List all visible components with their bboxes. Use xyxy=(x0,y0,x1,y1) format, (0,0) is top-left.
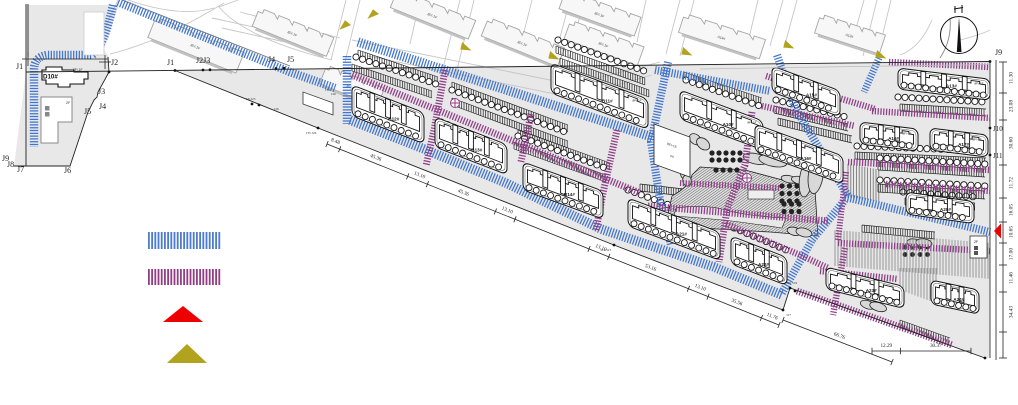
svg-text:8F/-1F: 8F/-1F xyxy=(747,120,756,124)
svg-text:B11#: B11# xyxy=(602,99,613,104)
svg-text:17.00: 17.00 xyxy=(1009,248,1015,260)
svg-text:23.08: 23.08 xyxy=(1009,100,1015,112)
svg-text:A17#: A17# xyxy=(958,142,969,147)
svg-text:J1: J1 xyxy=(167,58,174,67)
svg-text:J6: J6 xyxy=(64,166,71,175)
svg-text:J1: J1 xyxy=(16,62,23,71)
svg-text:317: 317 xyxy=(786,313,791,317)
svg-text:A22#: A22# xyxy=(758,262,769,267)
svg-text:J9: J9 xyxy=(995,48,1002,57)
svg-text:J3: J3 xyxy=(98,87,105,96)
svg-text:34.43: 34.43 xyxy=(1009,306,1015,318)
svg-text:11.72: 11.72 xyxy=(1009,177,1015,189)
svg-text:A16#: A16# xyxy=(801,156,812,161)
svg-text:J2: J2 xyxy=(111,58,118,67)
svg-text:12.29: 12.29 xyxy=(880,343,892,349)
svg-text:8.48: 8.48 xyxy=(330,137,341,146)
svg-text:J11: J11 xyxy=(993,152,1003,160)
svg-text:325 319: 325 319 xyxy=(786,281,797,285)
svg-text:30.60: 30.60 xyxy=(1009,137,1015,149)
svg-text:A15#: A15# xyxy=(806,93,817,98)
svg-text:A21#: A21# xyxy=(676,231,687,236)
svg-text:J31J23: J31J23 xyxy=(246,97,256,101)
svg-text:J10: J10 xyxy=(993,125,1003,133)
svg-text:8F/-1F: 8F/-1F xyxy=(902,131,911,135)
svg-text:8F/-1F: 8F/-1F xyxy=(974,81,983,85)
svg-text:8F/-1F: 8F/-1F xyxy=(632,99,641,103)
svg-text:J7: J7 xyxy=(17,165,24,174)
svg-text:A10#: A10# xyxy=(723,122,734,127)
svg-text:J5: J5 xyxy=(84,107,91,116)
svg-text:J35 J26: J35 J26 xyxy=(306,131,317,135)
svg-text:J4: J4 xyxy=(99,102,106,111)
svg-text:B14#: B14# xyxy=(564,192,575,197)
svg-text:D10#: D10# xyxy=(43,74,58,81)
svg-text:11.30: 11.30 xyxy=(1009,72,1015,84)
svg-text:B12#: B12# xyxy=(388,116,399,121)
svg-text:A16#: A16# xyxy=(888,136,899,141)
svg-text:11.46: 11.46 xyxy=(1009,272,1015,284)
svg-text:16.05: 16.05 xyxy=(1009,204,1015,216)
svg-text:J9: J9 xyxy=(2,154,9,163)
svg-text:J26: J26 xyxy=(274,107,279,111)
svg-text:A24#: A24# xyxy=(953,297,964,302)
svg-text:30.37: 30.37 xyxy=(930,343,942,349)
svg-text:8F/-1F: 8F/-1F xyxy=(972,137,981,141)
svg-text:B13#: B13# xyxy=(471,148,482,153)
svg-text:J4: J4 xyxy=(268,55,275,64)
svg-text:2F: 2F xyxy=(974,240,978,244)
svg-text:J29: J29 xyxy=(331,92,336,96)
svg-text:J5: J5 xyxy=(287,55,294,64)
svg-text:10.65: 10.65 xyxy=(1009,226,1015,238)
svg-text:J2J3: J2J3 xyxy=(196,56,210,65)
svg-text:J30: J30 xyxy=(325,88,330,92)
